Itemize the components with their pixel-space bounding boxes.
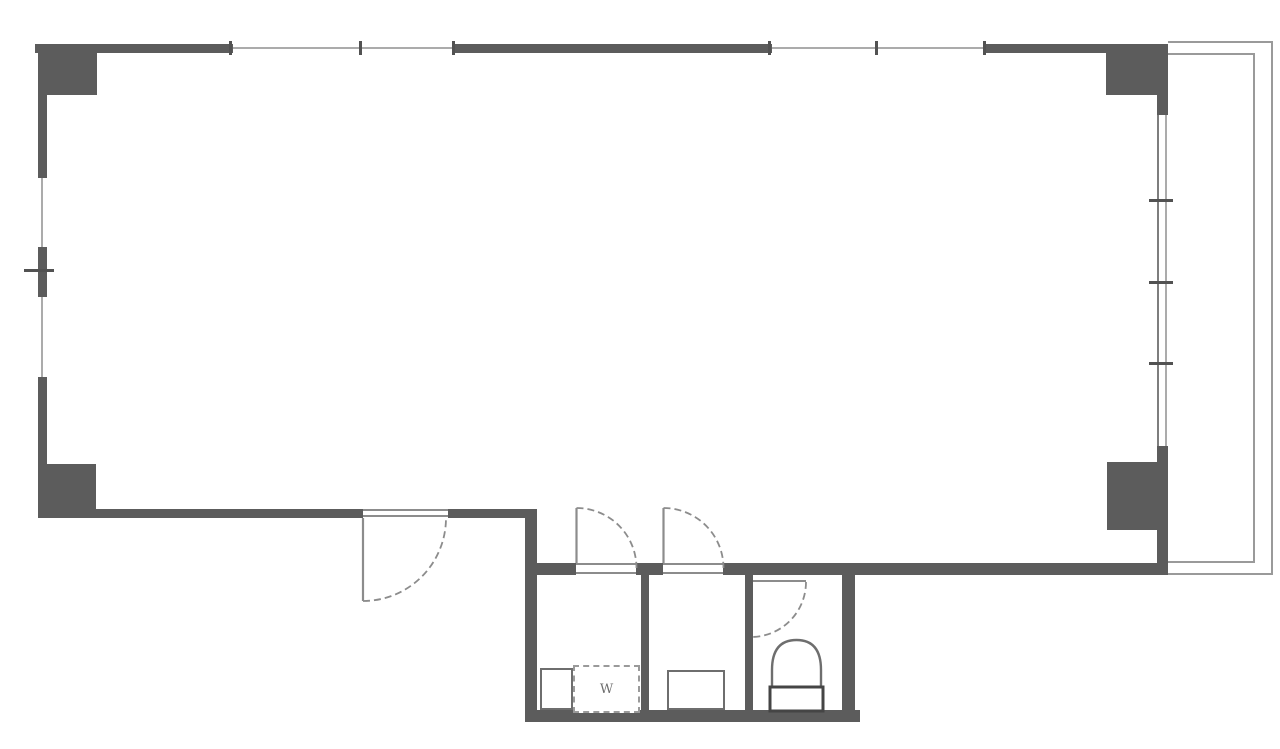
balcony-bottom-inner-line <box>1168 561 1255 563</box>
window-top-left <box>229 41 455 55</box>
bath-door-right-arc <box>664 508 724 568</box>
balcony-top-inner-line <box>1168 53 1255 55</box>
window-top-right-end-tick-2 <box>983 41 986 55</box>
wall-left <box>38 44 47 518</box>
balcony-bottom-outer-line <box>1168 573 1273 575</box>
vanity-fixture <box>667 670 725 710</box>
bath-door-right-threshold-bottom <box>663 572 723 574</box>
bath-door-left-threshold-bottom <box>576 572 636 574</box>
pillar-bottom-right <box>1107 462 1168 530</box>
window-left-lower-glazing <box>41 297 43 377</box>
toilet-tank <box>770 687 823 711</box>
toilet-icon <box>772 640 821 710</box>
bath-door-left-threshold-top <box>576 563 636 565</box>
washer-label: W <box>600 683 613 696</box>
wall-right-stub-bottom <box>1157 446 1168 462</box>
bath-door-left-arc <box>577 508 637 568</box>
balcony-right-inner-line <box>1253 53 1255 563</box>
entrance-door-arc <box>363 518 446 601</box>
window-top-left-end-tick <box>229 41 232 55</box>
washing-machine-box: W <box>573 665 640 713</box>
window-left-mullion <box>24 269 54 272</box>
window-top-left-mullion <box>359 41 362 55</box>
toilet-door-arc <box>751 582 806 637</box>
bath-door-right-threshold-top <box>663 563 723 565</box>
window-right-mullion-2 <box>1149 281 1173 284</box>
sink-fixture <box>540 668 573 710</box>
window-right-mullion-1 <box>1149 199 1173 202</box>
pillar-bottom-left <box>38 464 96 518</box>
window-left-upper-glazing <box>41 178 43 247</box>
pillar-top-left <box>38 44 97 95</box>
bathroom-wall-left <box>525 509 537 722</box>
bathroom-divider-2 <box>745 575 753 710</box>
window-top-left-glazing <box>233 47 452 49</box>
balcony-top-outer-line <box>1168 41 1273 43</box>
floor-plan: W <box>0 0 1280 749</box>
window-top-right-end-tick <box>768 41 771 55</box>
balcony-right-outer-line <box>1271 41 1273 575</box>
doors-overlay <box>0 0 1280 749</box>
window-top-left-end-tick-2 <box>452 41 455 55</box>
wall-bottom-right-b <box>636 563 663 575</box>
bathroom-wall-right <box>842 563 855 722</box>
wall-bottom-right-c <box>723 563 1168 575</box>
window-top-right <box>768 41 986 55</box>
window-right-wall <box>1149 115 1173 446</box>
entrance-threshold-line-1 <box>363 509 448 511</box>
wall-bottom-right-a <box>537 563 576 575</box>
entrance-threshold-line-2 <box>363 515 448 517</box>
window-top-right-mullion <box>875 41 878 55</box>
wall-right-stub-top <box>1157 95 1168 115</box>
bathroom-divider-1 <box>641 575 649 710</box>
pillar-top-right <box>1106 44 1168 95</box>
wall-bottom-left-2 <box>448 509 537 518</box>
wall-top <box>35 44 1168 53</box>
window-right-mullion-3 <box>1149 362 1173 365</box>
